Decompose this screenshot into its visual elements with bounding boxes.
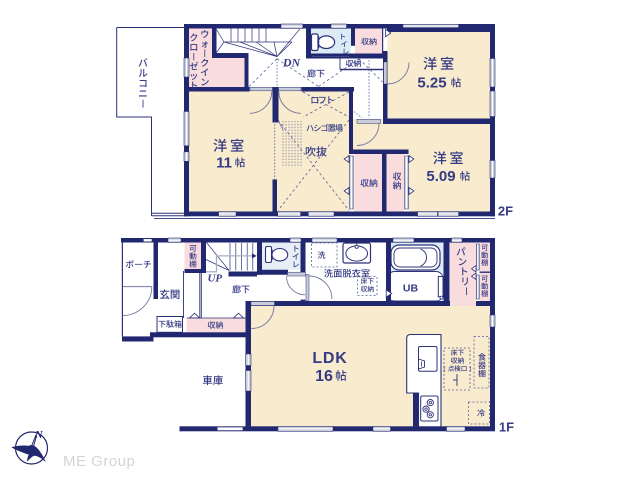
svg-text:16: 16 (315, 368, 333, 385)
svg-text:11: 11 (216, 155, 232, 172)
svg-text:1F: 1F (499, 420, 514, 435)
svg-text:UP: UP (207, 273, 222, 285)
svg-text:LDK: LDK (312, 350, 347, 367)
svg-text:2F: 2F (498, 204, 513, 219)
svg-text:DN: DN (282, 56, 302, 70)
svg-text:5.25: 5.25 (417, 75, 446, 92)
svg-text:): ) (469, 366, 471, 373)
svg-text:UB: UB (403, 283, 419, 295)
svg-text:5.09: 5.09 (426, 168, 455, 185)
svg-text:ME Group: ME Group (63, 453, 135, 470)
